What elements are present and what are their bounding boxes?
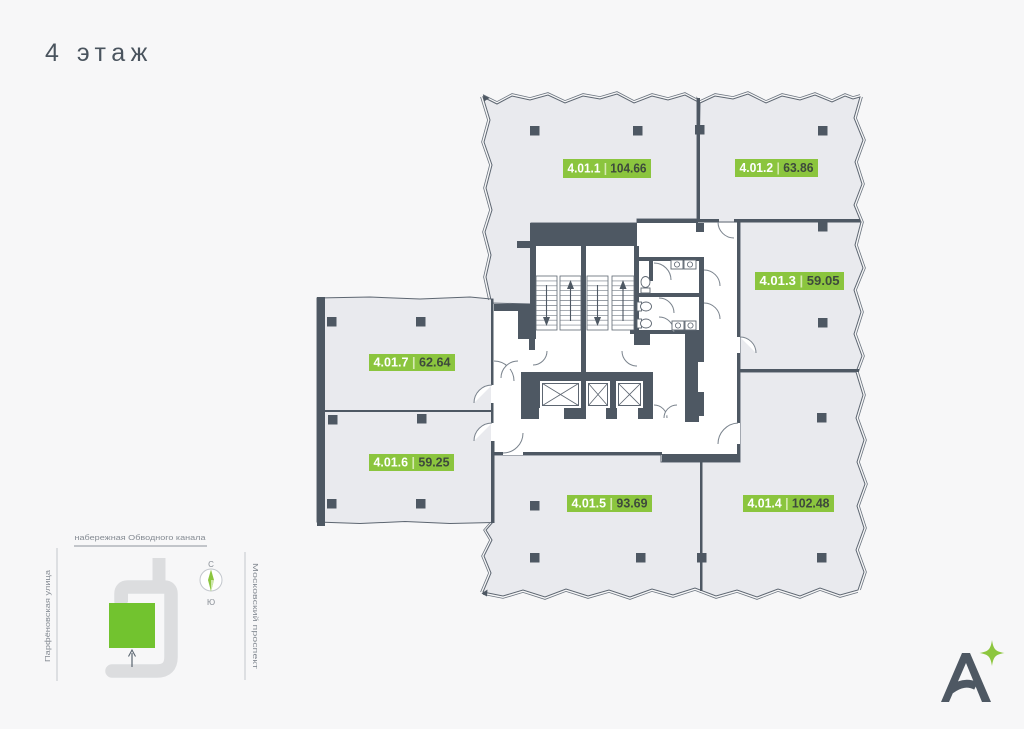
- svg-text:4.01.2 | 63.86: 4.01.2 | 63.86: [740, 161, 814, 175]
- svg-text:набережная Обводного канала: набережная Обводного канала: [75, 533, 207, 542]
- svg-text:4.01.7 | 62.64: 4.01.7 | 62.64: [374, 356, 451, 370]
- svg-text:4.01.1 | 104.66: 4.01.1 | 104.66: [568, 162, 647, 176]
- svg-text:Ю: Ю: [207, 598, 215, 607]
- svg-text:4.01.4 | 102.48: 4.01.4 | 102.48: [748, 497, 830, 511]
- svg-text:4.01.3 | 59.05: 4.01.3 | 59.05: [760, 274, 840, 288]
- svg-text:4.01.6 | 59.25: 4.01.6 | 59.25: [374, 456, 450, 470]
- svg-text:Парфёновская улица: Парфёновская улица: [43, 570, 52, 662]
- svg-text:Московский проспект: Московский проспект: [251, 563, 260, 670]
- svg-text:4 этаж: 4 этаж: [45, 39, 153, 67]
- svg-text:4.01.5 | 93.69: 4.01.5 | 93.69: [572, 497, 648, 511]
- svg-text:С: С: [208, 560, 214, 569]
